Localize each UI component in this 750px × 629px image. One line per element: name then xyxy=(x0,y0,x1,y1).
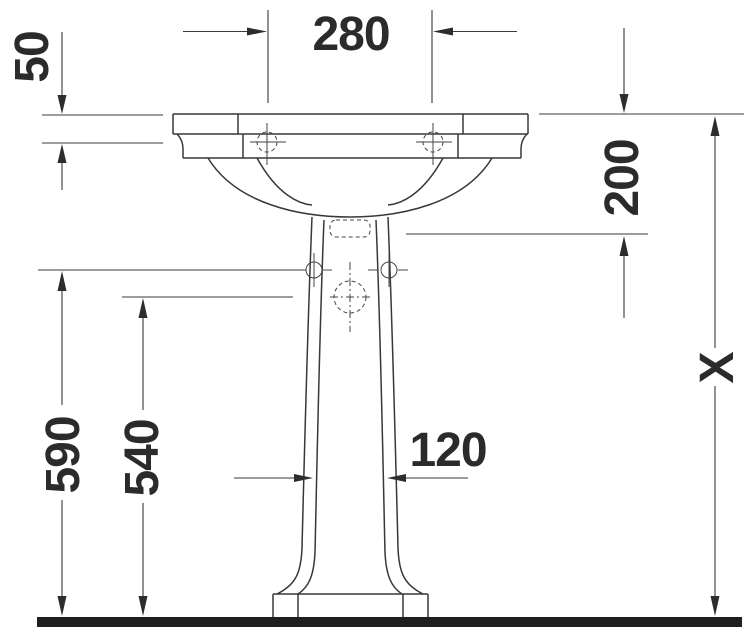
dimension-280: 280 xyxy=(183,8,517,103)
dimension-x: X xyxy=(691,116,744,616)
dim-590-arrowhead-bottom xyxy=(58,596,67,616)
dim-label-280: 280 xyxy=(312,8,389,61)
dimension-590: 590 xyxy=(37,270,306,616)
dimension-120: 120 xyxy=(234,424,487,482)
washbasin xyxy=(173,114,528,617)
dim-label-x: X xyxy=(691,352,744,384)
dim-590-arrowhead-top xyxy=(58,271,67,291)
dimension-540: 540 xyxy=(116,297,293,616)
technical-drawing-canvas: 280 50 200 X 590 xyxy=(0,0,750,629)
dim-280-arrowhead-left xyxy=(247,28,267,36)
dim-label-590: 590 xyxy=(37,416,90,493)
dim-540-arrowhead-top xyxy=(139,298,148,318)
dim-label-50: 50 xyxy=(6,31,59,82)
dimension-200: 200 xyxy=(406,28,744,318)
fixing-hole-right xyxy=(368,253,408,287)
dim-200-arrowhead-top xyxy=(620,94,629,113)
rim-skirt-right-profile xyxy=(521,134,527,158)
dim-x-arrowhead-bottom xyxy=(711,596,720,616)
dim-label-540: 540 xyxy=(116,419,169,496)
floor-line xyxy=(37,617,742,627)
dimension-50: 50 xyxy=(6,31,163,190)
dim-200-arrowhead-bottom xyxy=(620,236,629,256)
pedestal-washbasin-dimension-drawing: 280 50 200 X 590 xyxy=(0,0,750,629)
overflow-opening-outline xyxy=(330,220,370,237)
bowl xyxy=(208,158,492,217)
overflow-opening xyxy=(330,220,370,237)
dim-50-arrowhead-top xyxy=(58,95,67,114)
basin-rim xyxy=(173,114,528,158)
bowl-inner-curve-right xyxy=(388,158,443,205)
dim-540-arrowhead-bottom xyxy=(139,596,148,616)
dim-280-arrowhead-right xyxy=(433,28,453,36)
rim-skirt-left-profile xyxy=(177,134,183,158)
siphon-outlet xyxy=(330,262,370,332)
pedestal xyxy=(273,217,428,617)
bowl-outer-curve xyxy=(208,158,492,217)
bowl-inner-curve-left xyxy=(257,158,312,205)
dim-label-200: 200 xyxy=(596,139,649,216)
dim-50-arrowhead-bottom xyxy=(58,144,67,163)
pedestal-outer-right xyxy=(388,217,423,594)
dim-x-arrowhead-top xyxy=(711,116,720,136)
dim-label-120: 120 xyxy=(409,424,486,477)
